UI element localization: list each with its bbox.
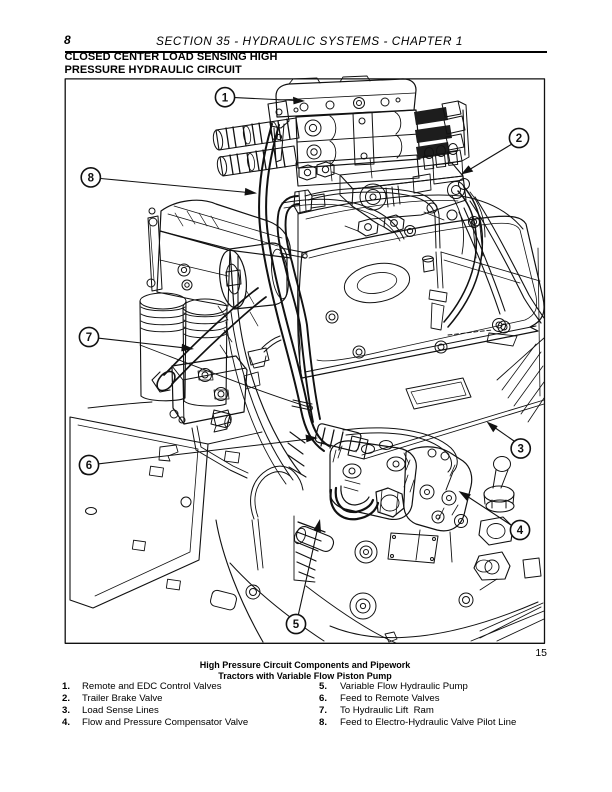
svg-text:8: 8 [88, 173, 95, 185]
svg-text:4: 4 [517, 525, 524, 537]
svg-text:6: 6 [86, 460, 92, 472]
svg-text:3: 3 [517, 444, 523, 456]
svg-text:5: 5 [293, 619, 300, 631]
svg-text:2: 2 [516, 133, 522, 145]
svg-text:1: 1 [222, 92, 229, 104]
svg-text:7: 7 [86, 332, 92, 344]
